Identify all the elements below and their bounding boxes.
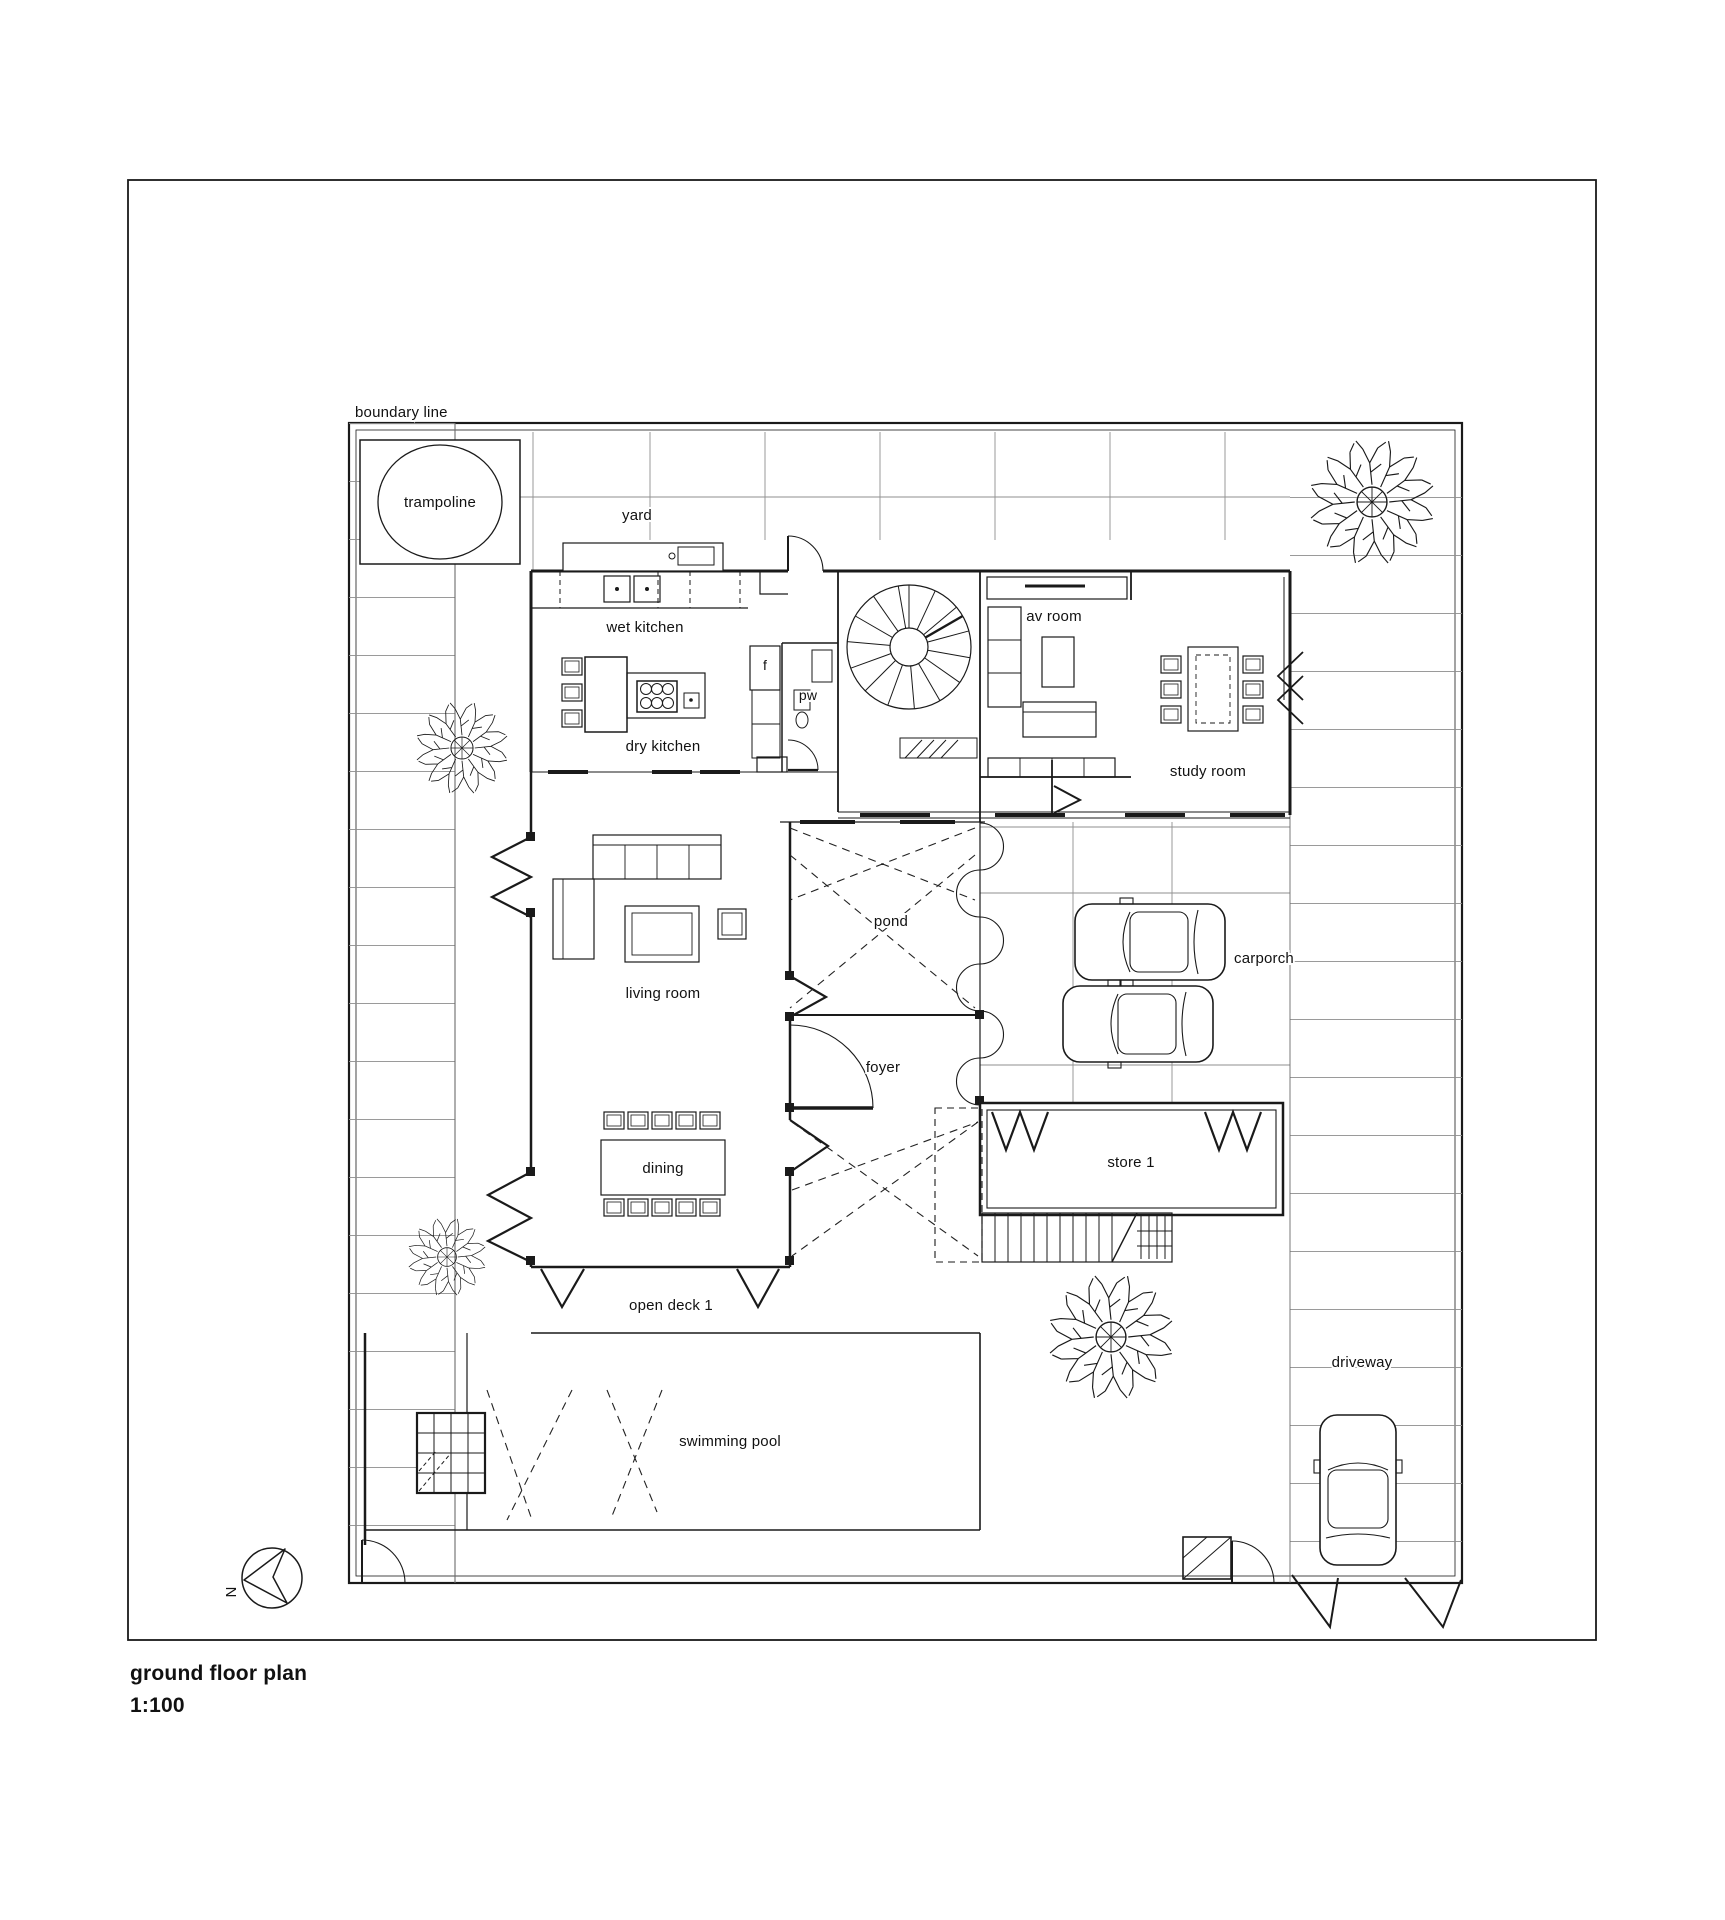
- label-store: store 1: [1107, 1154, 1154, 1171]
- av-room-furniture: [987, 577, 1127, 777]
- dry-kitchen-fittings: [562, 657, 705, 732]
- trellis-grid: [417, 1413, 485, 1493]
- car-carporch-1: [1075, 898, 1225, 986]
- label-swimming-pool: swimming pool: [679, 1433, 781, 1450]
- label-living-room: living room: [626, 985, 701, 1002]
- label-dining: dining: [642, 1160, 683, 1177]
- label-fridge: f: [763, 657, 767, 673]
- floor-plan-page: boundary line trampoline yard wet kitche…: [0, 0, 1725, 1920]
- trees: [409, 441, 1433, 1398]
- label-north: N: [223, 1586, 240, 1597]
- dashed-projection-lines: [487, 828, 978, 1520]
- drawing-title: ground floor plan: [130, 1662, 307, 1685]
- car-carporch-2: [1063, 980, 1213, 1068]
- label-wet-kitchen: wet kitchen: [605, 619, 683, 636]
- label-trampoline: trampoline: [404, 494, 476, 511]
- stair-landing-hatch: [900, 738, 977, 758]
- yard-entry: [563, 536, 823, 571]
- living-room-furniture: [553, 835, 746, 962]
- car-driveway: [1314, 1415, 1402, 1565]
- label-powder-room: pw: [799, 687, 818, 703]
- floor-plan-drawing: boundary line trampoline yard wet kitche…: [0, 0, 1725, 1920]
- label-driveway: driveway: [1332, 1354, 1393, 1371]
- north-arrow: [242, 1548, 302, 1608]
- paving-grid: [349, 423, 1462, 1583]
- label-carporch: carporch: [1234, 950, 1294, 967]
- label-open-deck: open deck 1: [629, 1297, 713, 1314]
- label-yard: yard: [622, 507, 652, 524]
- study-room-furniture: [1161, 647, 1263, 731]
- label-pond: pond: [874, 913, 908, 930]
- label-dry-kitchen: dry kitchen: [626, 738, 701, 755]
- title-block: ground floor plan 1:100: [130, 1662, 307, 1717]
- label-foyer: foyer: [866, 1059, 900, 1076]
- wet-kitchen-fittings: [531, 571, 748, 608]
- exterior-walls: [531, 571, 1303, 822]
- label-study-room: study room: [1170, 763, 1246, 780]
- spiral-staircase: [847, 585, 971, 709]
- label-av-room: av room: [1026, 608, 1082, 625]
- label-boundary-line: boundary line: [355, 404, 448, 421]
- interior-walls: [488, 772, 1003, 1307]
- tree-icon: [1050, 1276, 1172, 1398]
- wall-posts: [526, 832, 984, 1265]
- drawing-scale: 1:100: [130, 1694, 185, 1717]
